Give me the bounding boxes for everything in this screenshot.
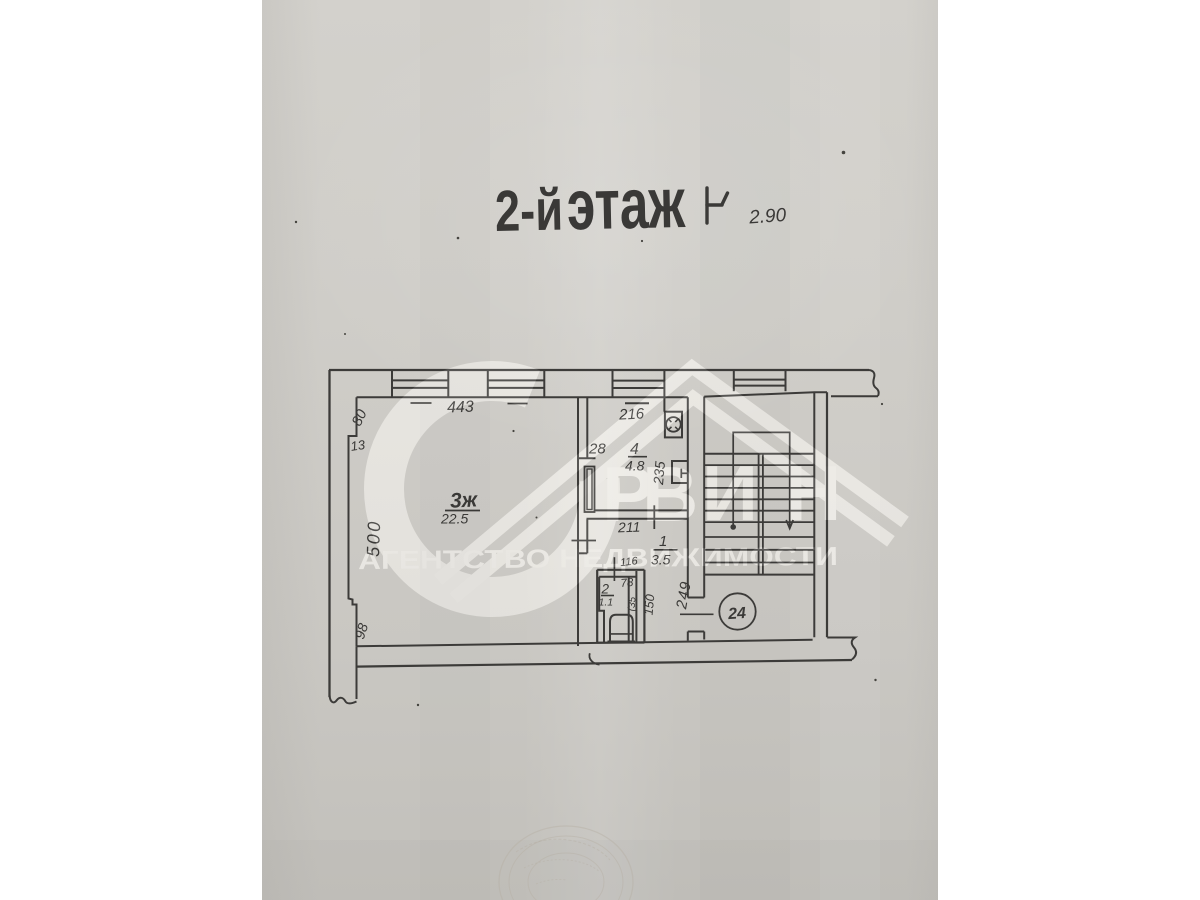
svg-text:2.90: 2.90	[747, 205, 787, 229]
svg-text:2-й: 2-й	[494, 178, 563, 244]
svg-text:78: 78	[620, 577, 634, 590]
svg-text:3ж: 3ж	[449, 488, 479, 512]
svg-text:2: 2	[601, 582, 610, 597]
svg-text:(35: (35	[627, 596, 639, 612]
svg-text:1.1: 1.1	[599, 597, 614, 609]
svg-text:Н: Н	[785, 449, 841, 537]
svg-text:И: И	[702, 449, 758, 537]
svg-text:150: 150	[642, 594, 658, 616]
svg-text:этаж: этаж	[566, 164, 686, 245]
svg-text:В: В	[642, 450, 698, 538]
svg-text:22.5: 22.5	[440, 511, 468, 527]
svg-text:АГЕНТСТВО НЕДВИЖИМОСТИ: АГЕНТСТВО НЕДВИЖИМОСТИ	[358, 541, 838, 575]
svg-text:24: 24	[727, 605, 747, 623]
svg-text:13: 13	[350, 437, 367, 454]
